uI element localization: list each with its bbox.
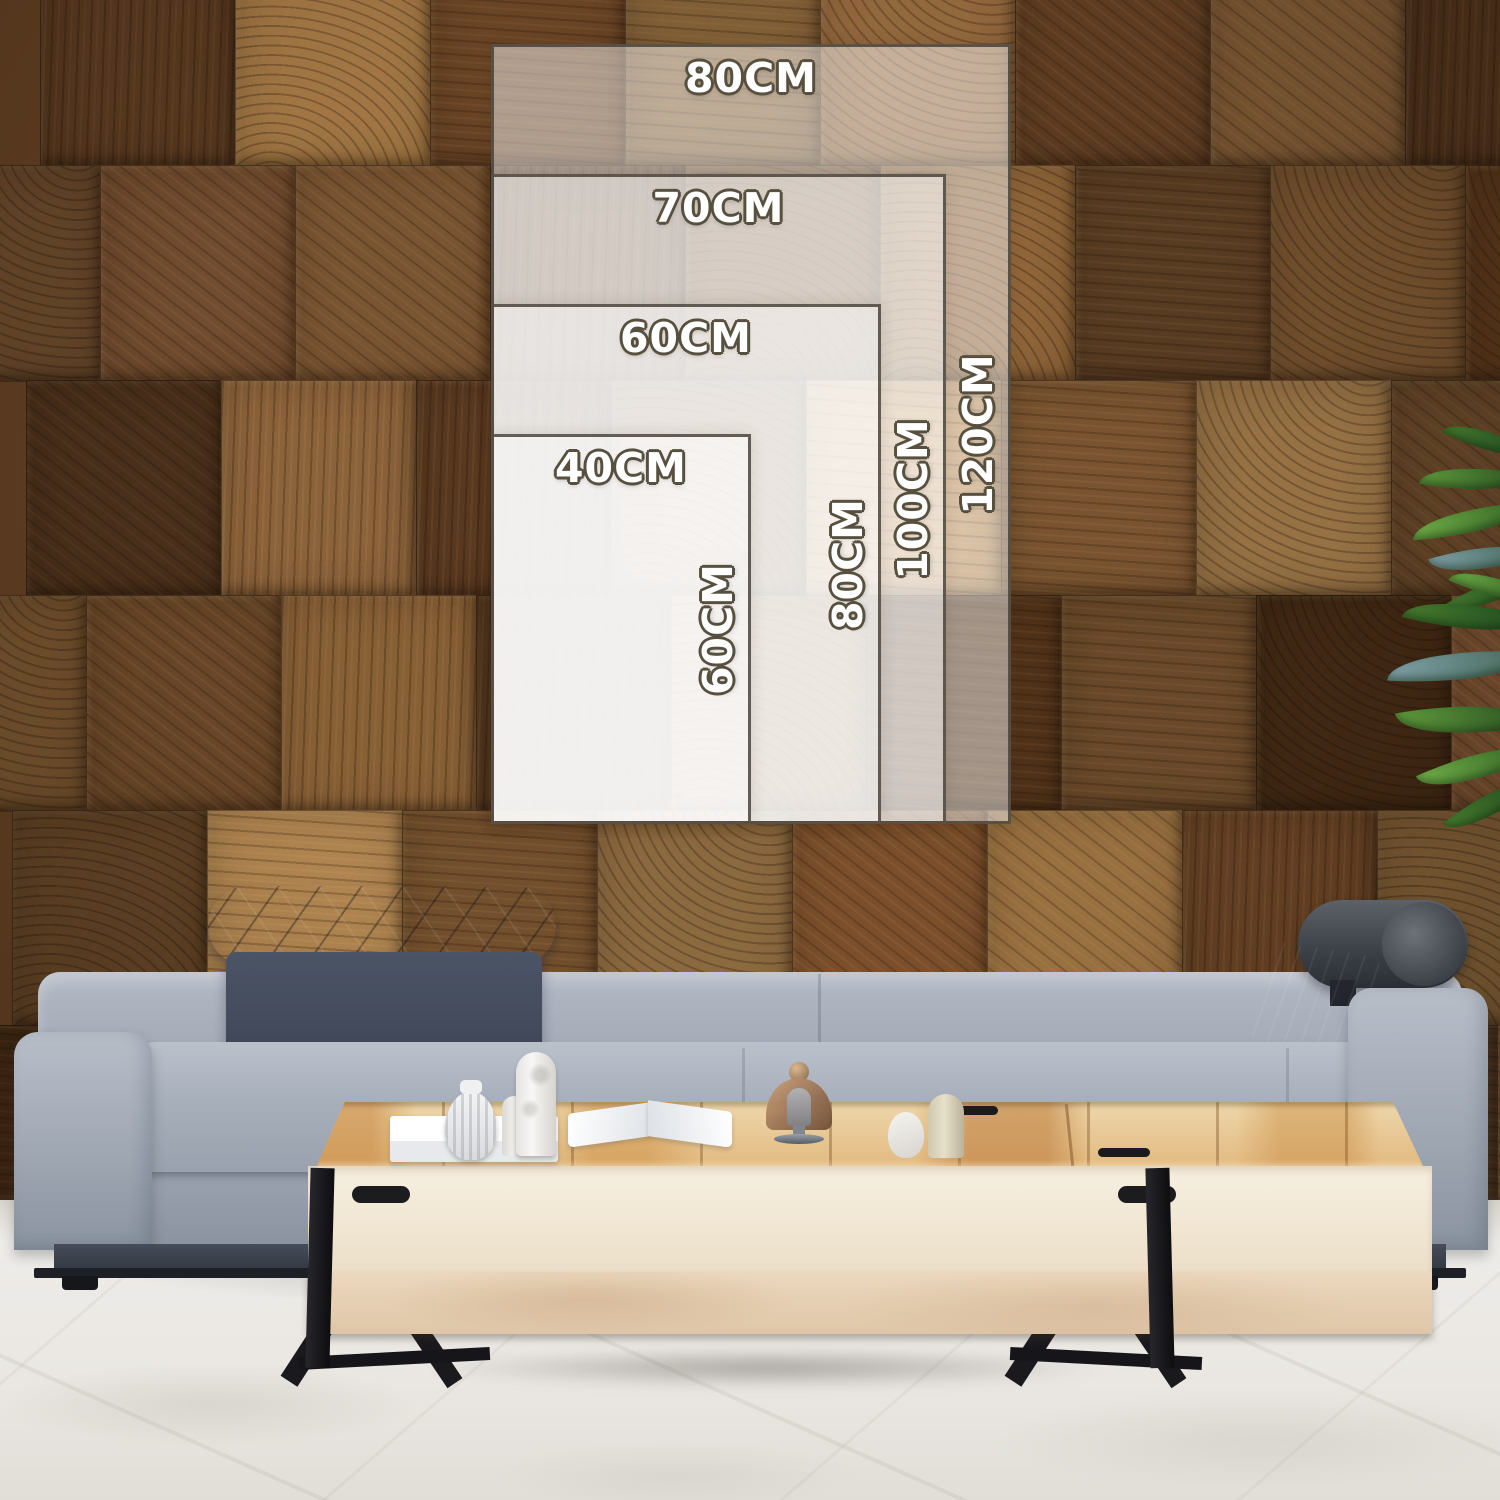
cloche-dome: [766, 1078, 832, 1130]
wood-tile: [625, 0, 822, 167]
wood-tile: [806, 380, 1003, 597]
wood-tile: [235, 0, 432, 167]
wood-tile: [611, 380, 808, 597]
wood-tile: [1196, 380, 1393, 597]
open-book: [568, 1100, 732, 1146]
bolster-end-cap: [1382, 902, 1466, 986]
size-guide-scene: 80CM120CM70CM100CM60CM80CM40CM60CM: [0, 0, 1500, 1500]
wood-tile: [26, 380, 223, 597]
wood-tile: [1001, 380, 1198, 597]
candle: [928, 1094, 964, 1158]
wood-tile: [685, 165, 882, 382]
book-page-right: [648, 1100, 732, 1148]
wood-tile: [1465, 165, 1500, 382]
cloche-foot: [774, 1134, 824, 1144]
book-page-left: [568, 1102, 650, 1148]
wood-tile: [0, 165, 102, 382]
marble-vase-tall: [516, 1052, 556, 1156]
glass-cloche: [766, 1062, 832, 1140]
wood-tile: [100, 165, 297, 382]
wood-tile: [40, 0, 237, 167]
wood-tile: [295, 165, 492, 382]
wood-tile: [86, 595, 283, 812]
table-front-lower: [308, 1272, 1432, 1334]
wood-tile: [281, 595, 478, 812]
table-front-upper: [308, 1166, 1432, 1274]
sofa-foot: [62, 1276, 98, 1290]
wood-tile: [416, 380, 613, 597]
sofa-back-seam: [818, 974, 821, 1046]
wood-tile: [0, 595, 88, 812]
wood-tile: [671, 595, 868, 812]
ribbed-vase: [445, 1092, 497, 1160]
wood-tile: [1405, 0, 1500, 167]
table-handle: [352, 1186, 410, 1203]
table-top-slot: [1098, 1148, 1150, 1157]
wood-tile: [1075, 165, 1272, 382]
wood-tile: [1210, 0, 1407, 167]
wood-tile: [866, 595, 1063, 812]
wood-tile: [490, 165, 687, 382]
wood-tile: [1270, 165, 1467, 382]
wood-tile: [430, 0, 627, 167]
wood-tile: [820, 0, 1017, 167]
wood-tile: [880, 165, 1077, 382]
wood-tile: [1061, 595, 1258, 812]
small-vase: [888, 1112, 924, 1158]
wood-tile: [476, 595, 673, 812]
wood-tile: [1015, 0, 1212, 167]
sofa-armrest-left: [14, 1032, 152, 1250]
wood-tile: [221, 380, 418, 597]
